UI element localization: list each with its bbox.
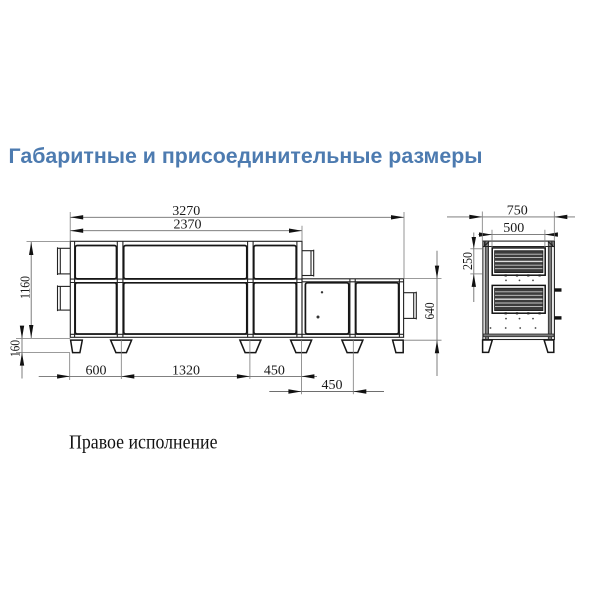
svg-text:450: 450 — [264, 363, 285, 378]
svg-text:500: 500 — [503, 221, 524, 236]
svg-text:600: 600 — [86, 363, 107, 378]
svg-text:1160: 1160 — [18, 276, 33, 299]
svg-text:750: 750 — [507, 204, 528, 219]
svg-text:1320: 1320 — [172, 363, 200, 378]
svg-text:640: 640 — [423, 303, 438, 320]
svg-text:160: 160 — [9, 340, 24, 357]
svg-text:250: 250 — [461, 252, 476, 270]
svg-text:Правое исполнение: Правое исполнение — [69, 432, 218, 454]
svg-text:2370: 2370 — [174, 217, 202, 232]
svg-text:Габаритные и присоединительные: Габаритные и присоединительные размеры — [9, 144, 483, 168]
svg-text:450: 450 — [322, 378, 343, 393]
